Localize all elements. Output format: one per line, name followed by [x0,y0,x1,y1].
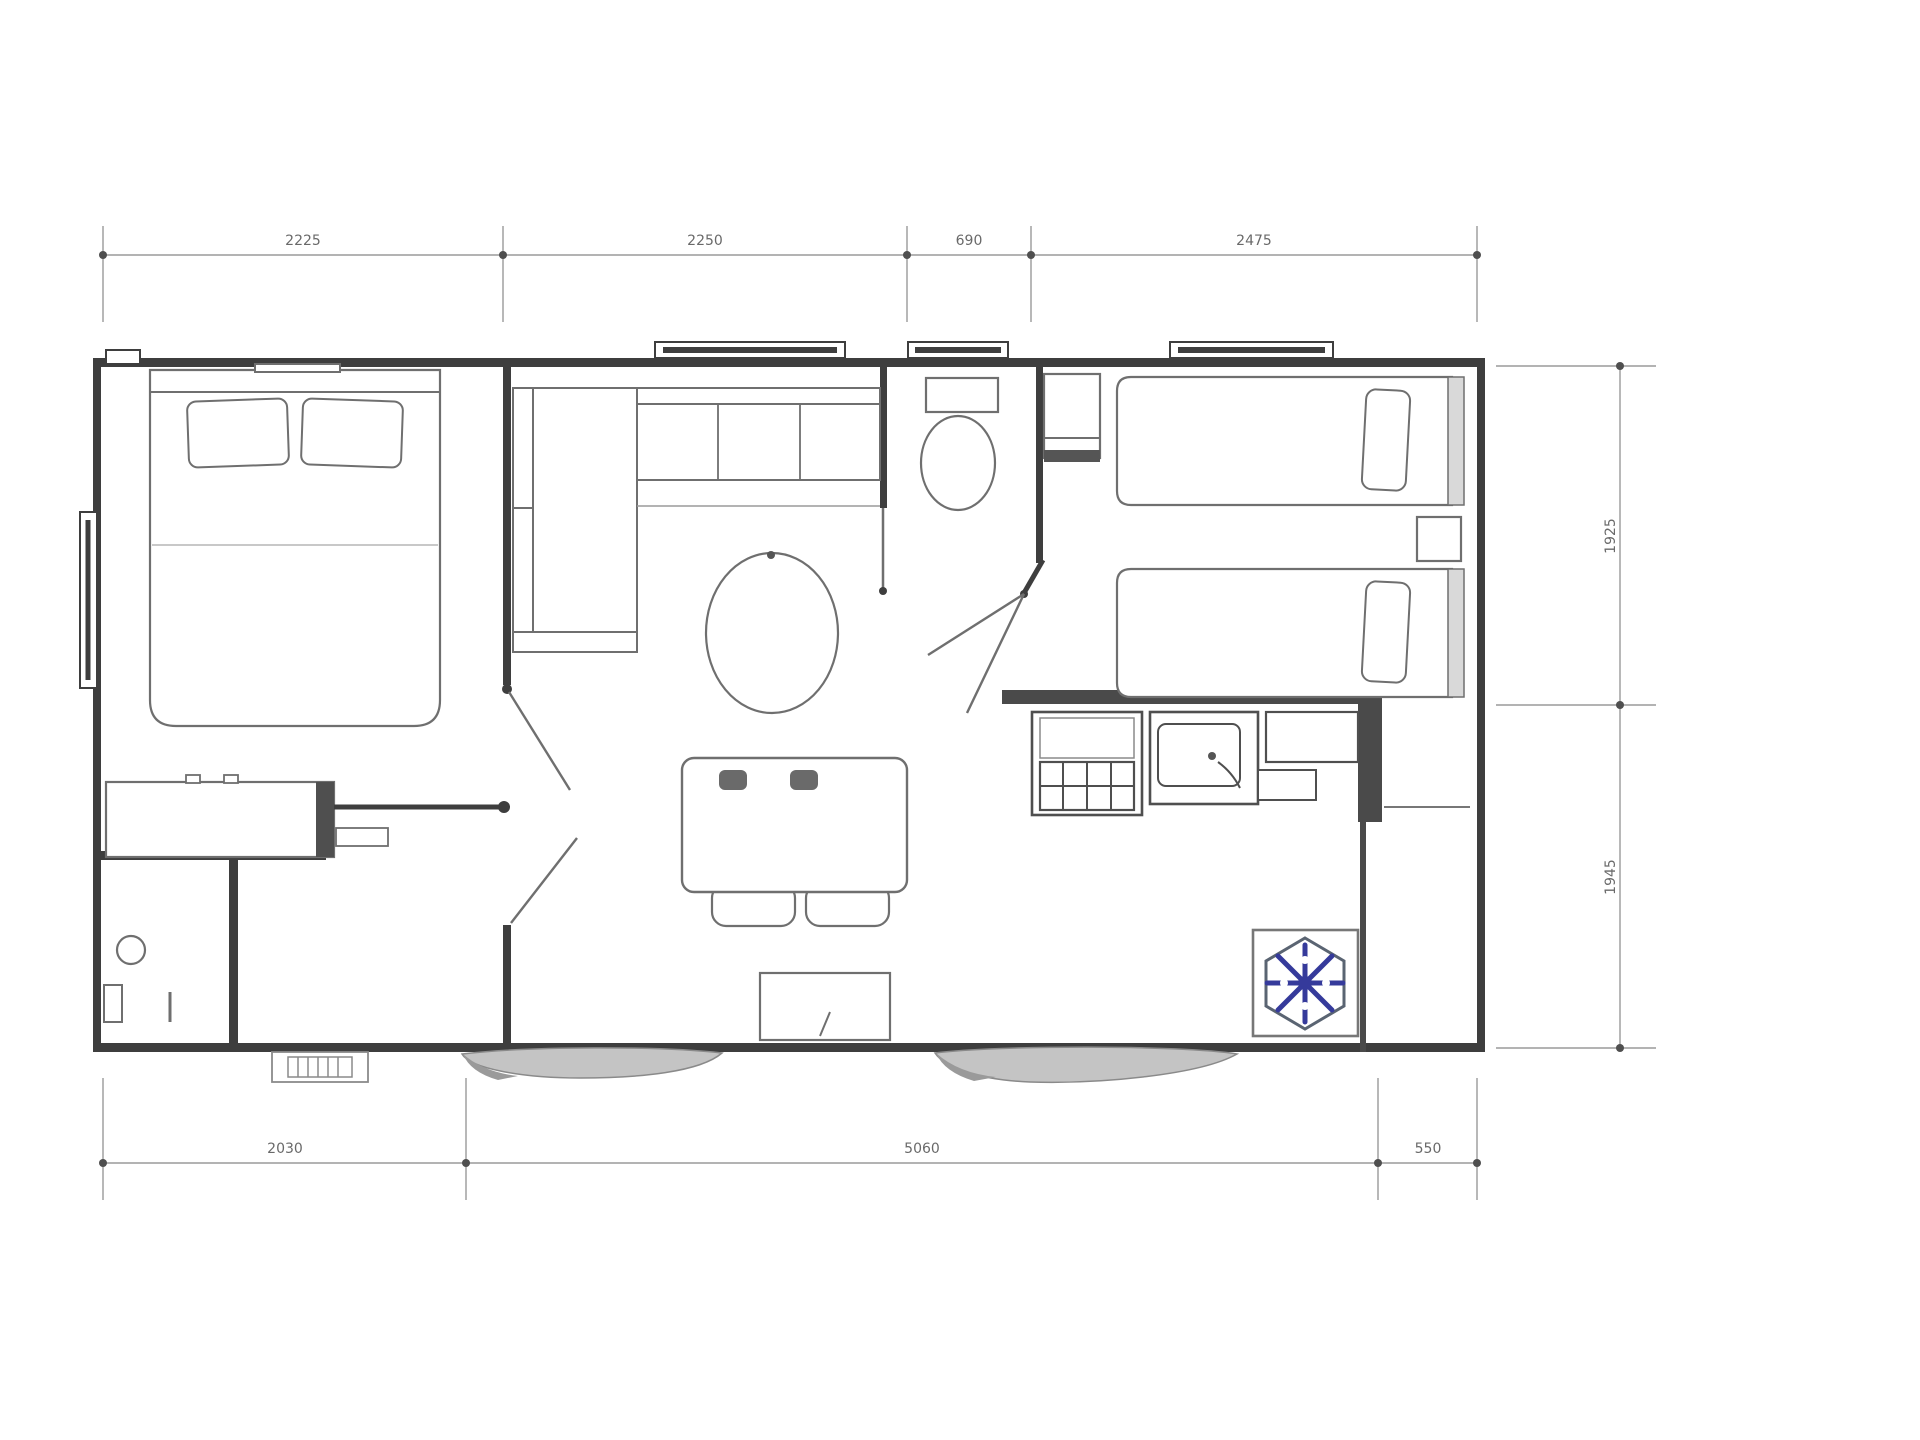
wall-master-bedroom [503,358,511,685]
washbasin [117,936,145,964]
ac-unit [1253,930,1358,1036]
toilet-cistern [926,378,998,412]
wall-hall-stub [503,925,511,1052]
window-small-top-left [106,350,140,364]
sink-unit [1150,712,1258,804]
entry-steps [272,1047,1237,1082]
living-room [513,388,907,1040]
dim-top-3: 690 [956,233,983,249]
double-bed [150,364,440,726]
twin-bed-1 [1117,377,1464,505]
wall-left [93,358,101,1052]
hob-unit [1032,712,1142,815]
chair-back-mark [719,770,747,790]
nightstand [1417,517,1461,561]
dining-set [682,758,907,926]
counter-right [1258,712,1358,800]
dim-top-1: 2225 [285,233,321,249]
closet [1044,374,1100,462]
cabinet-bottom [760,973,890,1040]
round-table [706,551,838,713]
pillow-left [187,398,289,467]
corner-sofa [513,388,880,652]
dim-right-1: 1925 [1603,518,1619,554]
twin-bed-2 [1117,569,1464,697]
wall-angled [1024,560,1043,593]
bathroom [104,936,170,1022]
sliding-door [334,801,510,846]
door-leaf-hall [511,838,577,923]
toilet-small [104,985,122,1022]
dim-right-2: 1945 [1603,859,1619,895]
wc-room [921,378,998,510]
pillow [1361,389,1410,491]
window-left-wall [80,512,97,688]
dim-top-4: 2475 [1236,233,1272,249]
wall-bathroom-right [229,851,238,1052]
pillow [1361,581,1410,683]
vent-grate [272,1052,368,1082]
toilet-bowl [921,416,995,510]
wall-right [1477,358,1485,1052]
wall-bottom [93,1043,1485,1052]
master-bedroom [106,364,510,857]
dim-bottom-2: 5060 [904,1141,940,1157]
floor-plan-drawing: 2225 2250 690 2475 2030 5060 550 1925 19… [0,0,1920,1440]
floor-plan-canvas: 2225 2250 690 2475 2030 5060 550 1925 19… [0,0,1920,1440]
window-twin-bedroom [1170,342,1333,358]
dim-bottom-3: 550 [1415,1141,1442,1157]
wall-wc-left [880,358,887,508]
wall-wc-right [1036,358,1043,563]
pillow-right [301,398,403,467]
window-living [655,342,845,358]
dim-top-2: 2250 [687,233,723,249]
kitchen [1032,712,1358,815]
wardrobe [106,775,334,857]
kitchen-tall-unit [1358,698,1382,822]
dim-bottom-1: 2030 [267,1141,303,1157]
faucet-icon [1208,752,1216,760]
twin-bedroom [1117,377,1464,697]
door-leaf-master [509,692,570,790]
wall-kitchen-right [1360,822,1366,1052]
chair-back-mark [790,770,818,790]
window-wc [908,342,1008,358]
